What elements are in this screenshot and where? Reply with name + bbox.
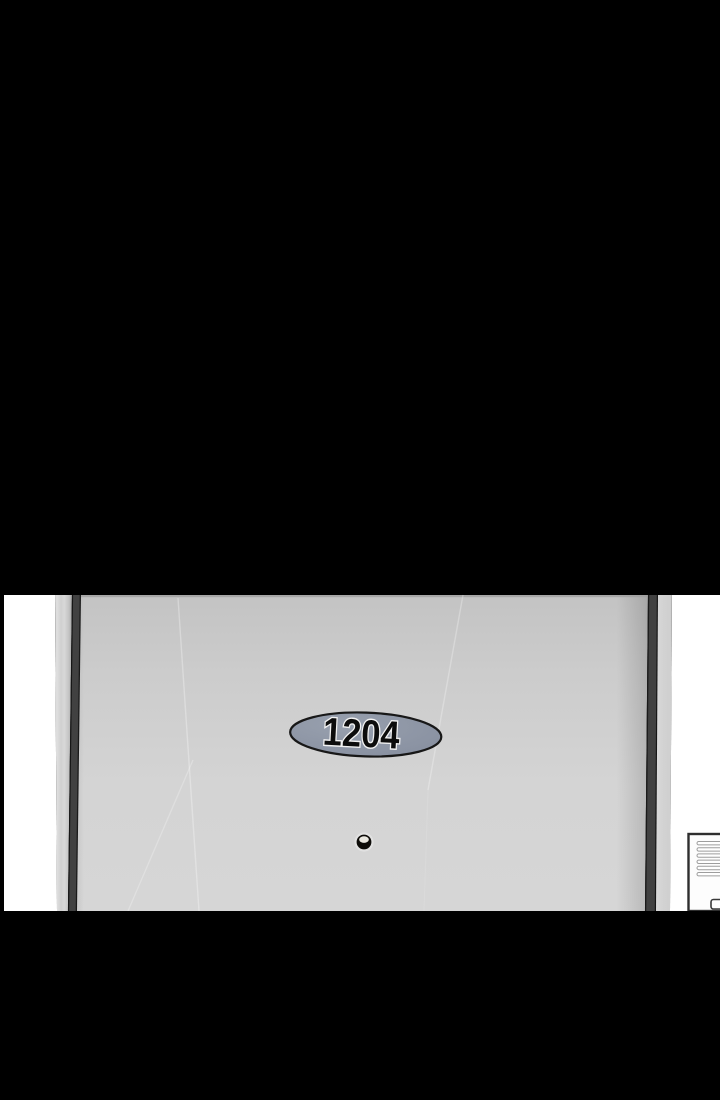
- svg-text:1204: 1204: [322, 710, 401, 758]
